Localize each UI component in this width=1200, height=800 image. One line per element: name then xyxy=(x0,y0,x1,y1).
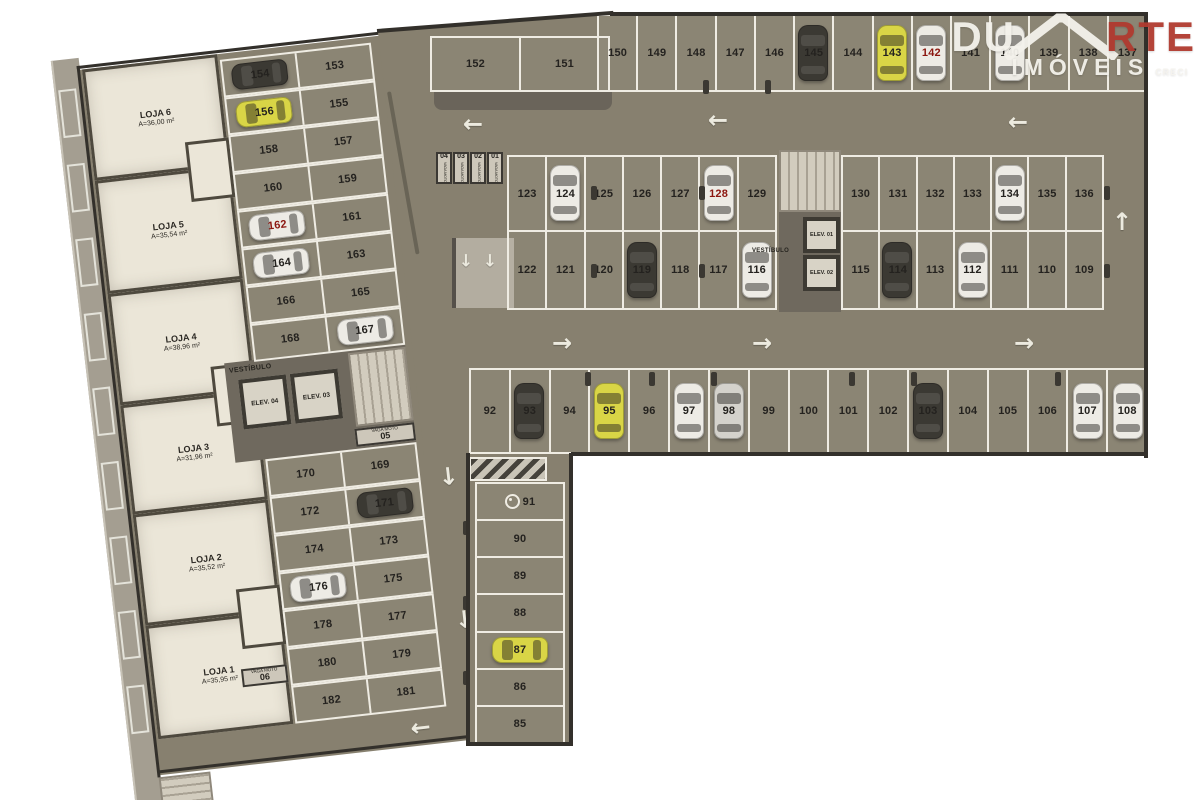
parking-spot: 121 xyxy=(545,232,583,308)
parking-spot: 130 xyxy=(843,157,878,230)
parking-spot: 125 xyxy=(584,157,622,230)
pillar xyxy=(699,264,705,278)
spot-number: 109 xyxy=(1075,264,1094,276)
spot-number: 146 xyxy=(765,47,784,59)
moto-sign-label: VAGA MOTO xyxy=(459,162,463,183)
parking-spot: 111 xyxy=(990,232,1027,308)
parking-spot: 105 xyxy=(987,370,1027,452)
ramp-down xyxy=(452,238,514,308)
parking-spot: 87 xyxy=(477,631,563,668)
watermark-line1: DU RTE xyxy=(951,12,1196,58)
parking-spot: 132 xyxy=(916,157,953,230)
parking-spot: 148 xyxy=(675,16,714,90)
spot-number: 120 xyxy=(594,264,613,276)
parking-row: 91908988878685 xyxy=(475,482,565,744)
parking-spot: 147 xyxy=(715,16,754,90)
moto-spot-sign-04: 04VAGA MOTO xyxy=(436,152,452,184)
spot-number: 100 xyxy=(799,405,818,417)
parking-spot: 129 xyxy=(737,157,775,230)
spot-number: 111 xyxy=(1001,264,1019,276)
spot-number: 131 xyxy=(888,188,907,200)
pillar xyxy=(649,372,655,386)
left-arrow: ← xyxy=(1008,110,1028,134)
pillar xyxy=(585,372,591,386)
spot-number: 96 xyxy=(643,405,656,417)
moto-sign-label: VAGA MOTO xyxy=(442,162,446,183)
parking-spot: 88 xyxy=(477,593,563,630)
pillar xyxy=(1104,264,1110,278)
spot-number: 90 xyxy=(514,533,527,545)
parking-row: 9293949596979899100101102103104105106107… xyxy=(469,368,1148,454)
spot-number: 87 xyxy=(514,644,527,656)
parking-spot: 93 xyxy=(509,370,549,452)
parking-spot: 123 xyxy=(509,157,545,230)
moto-spot-sign-03: 03VAGA MOTO xyxy=(453,152,469,184)
parking-spot: 91 xyxy=(477,484,563,519)
left-arrow: ← xyxy=(708,108,728,132)
spot-number: 132 xyxy=(926,188,945,200)
parking-spot: 89 xyxy=(477,556,563,593)
elevator-02-label: ELEV. 02 xyxy=(810,270,833,276)
moto-spot-sign-02: 02VAGA MOTO xyxy=(470,152,486,184)
pillar xyxy=(911,372,917,386)
spot-number: 145 xyxy=(804,47,823,59)
pillar xyxy=(765,80,771,94)
right-wing: VESTÍBULO ELEV. 01 ELEV. 02 152151150149… xyxy=(0,0,1200,800)
parking-spot: 90 xyxy=(477,519,563,556)
parking-spot: 144 xyxy=(832,16,871,90)
spot-number: 102 xyxy=(879,405,898,417)
right-arrow: → xyxy=(1014,331,1034,355)
moto-sign-number: 01 xyxy=(491,153,499,161)
spot-number: 129 xyxy=(747,188,766,200)
spot-number: 121 xyxy=(556,264,575,276)
spot-number: 115 xyxy=(851,264,869,276)
parking-spot: 101 xyxy=(827,370,867,452)
elevator-01: ELEV. 01 xyxy=(803,217,840,253)
wall xyxy=(569,453,573,746)
spot-number: 119 xyxy=(633,264,651,276)
spot-number: 104 xyxy=(958,405,977,417)
parking-spot: 131 xyxy=(878,157,915,230)
spot-number: 150 xyxy=(608,47,627,59)
parking-spot: 135 xyxy=(1027,157,1064,230)
spot-number: 147 xyxy=(726,47,745,59)
moto-sign-number: 02 xyxy=(474,153,482,161)
spot-number: 113 xyxy=(926,264,944,276)
spot-number: 92 xyxy=(484,405,497,417)
parking-spot: 95 xyxy=(588,370,628,452)
hatched-no-parking-zone xyxy=(469,457,547,481)
pillar xyxy=(849,372,855,386)
spot-number: 125 xyxy=(594,188,613,200)
parking-row: 130131132133134135136 xyxy=(841,155,1104,232)
wall xyxy=(571,452,1148,456)
right-arrow: → xyxy=(552,331,572,355)
parking-spot: 100 xyxy=(788,370,828,452)
spot-number: 148 xyxy=(687,47,706,59)
left-arrow: ← xyxy=(463,112,483,136)
pillar xyxy=(1104,186,1110,200)
watermark-creci: CRECI xyxy=(1155,67,1188,77)
pillar xyxy=(591,186,597,200)
spot-number: 106 xyxy=(1038,405,1057,417)
spot-number: 88 xyxy=(514,607,527,619)
parking-spot: 134 xyxy=(990,157,1027,230)
parking-spot: 136 xyxy=(1065,157,1102,230)
spot-number: 127 xyxy=(671,188,690,200)
watermark-imoveis: IMÓVEIS xyxy=(1011,54,1149,81)
spot-number: 86 xyxy=(514,681,527,693)
parking-spot: 102 xyxy=(867,370,907,452)
parking-spot: 104 xyxy=(947,370,987,452)
spot-number: 135 xyxy=(1038,188,1057,200)
spot-number: 128 xyxy=(709,188,728,200)
parking-spot: 133 xyxy=(953,157,990,230)
spot-number: 116 xyxy=(748,264,766,276)
parking-spot: 107 xyxy=(1066,370,1106,452)
duarte-imoveis-watermark: DU RTE IMÓVEIS CRECI xyxy=(951,12,1196,81)
parking-row: 122121120119118117116 xyxy=(507,230,777,310)
parking-spot: 114 xyxy=(878,232,915,308)
spot-number: 134 xyxy=(1000,188,1019,200)
parking-spot: 119 xyxy=(622,232,660,308)
elevator-01-label: ELEV. 01 xyxy=(810,232,833,238)
parking-spot: 113 xyxy=(916,232,953,308)
parking-spot: 143 xyxy=(872,16,911,90)
pillar xyxy=(1055,372,1061,386)
spot-number: 105 xyxy=(998,405,1017,417)
spot-number: 142 xyxy=(922,47,941,59)
spot-number: 89 xyxy=(514,570,527,582)
parking-spot: 115 xyxy=(843,232,878,308)
pillar xyxy=(591,264,597,278)
parking-spot: 122 xyxy=(509,232,545,308)
spot-number: 114 xyxy=(889,264,907,276)
spot-number: 112 xyxy=(963,264,981,276)
spot-number: 130 xyxy=(851,188,870,200)
spot-number: 98 xyxy=(723,405,736,417)
moto-sign-number: 03 xyxy=(457,153,465,161)
parking-spot: 86 xyxy=(477,668,563,705)
moto-sign-number: 04 xyxy=(440,153,448,161)
moto-spot-sign-01: 01VAGA MOTO xyxy=(487,152,503,184)
parking-spot: 151 xyxy=(519,38,608,90)
spot-number: 95 xyxy=(603,405,616,417)
watermark-rte: RTE xyxy=(1106,16,1196,58)
parking-spot: 146 xyxy=(754,16,793,90)
parking-spot: 145 xyxy=(793,16,832,90)
parking-spot: 108 xyxy=(1106,370,1146,452)
spot-number: 152 xyxy=(466,58,485,70)
right-arrow: → xyxy=(752,331,772,355)
pillar xyxy=(703,80,709,94)
spot-number: 149 xyxy=(647,47,666,59)
down-arrow: ↓ xyxy=(459,254,473,271)
parking-row: 123124125126127128129 xyxy=(507,155,777,232)
parking-spot: 149 xyxy=(636,16,675,90)
parking-row: 152151 xyxy=(430,36,610,92)
spot-number: 110 xyxy=(1038,264,1056,276)
wall-strip xyxy=(434,90,612,110)
parking-spot: 112 xyxy=(953,232,990,308)
pillar xyxy=(711,372,717,386)
parking-spot: 99 xyxy=(748,370,788,452)
parking-spot: 116 xyxy=(737,232,775,308)
moto-sign-label: VAGA MOTO xyxy=(476,162,480,183)
spot-number: 151 xyxy=(555,58,574,70)
spot-number: 143 xyxy=(883,47,902,59)
parking-spot: 150 xyxy=(599,16,636,90)
parking-spot: 124 xyxy=(545,157,583,230)
parking-spot: 92 xyxy=(471,370,509,452)
down-arrow: ↓ xyxy=(483,254,497,271)
spot-number: 126 xyxy=(633,188,652,200)
parking-spot: 94 xyxy=(549,370,589,452)
parking-spot: 97 xyxy=(668,370,708,452)
spot-number: 118 xyxy=(671,264,689,276)
spot-number: 107 xyxy=(1078,405,1097,417)
spot-number: 91 xyxy=(523,496,536,508)
spot-number: 85 xyxy=(514,718,527,730)
spot-number: 124 xyxy=(556,188,575,200)
parking-garage-floor-plan: LOJA 6A=36,00 m²LOJA 5A=35,54 m²LOJA 4A=… xyxy=(0,0,1200,800)
spot-number: 97 xyxy=(683,405,696,417)
parking-row: 115114113112111110109 xyxy=(841,230,1104,310)
vestibule-label: VESTÍBULO xyxy=(752,248,789,254)
spot-number: 136 xyxy=(1075,188,1094,200)
parking-spot: 109 xyxy=(1065,232,1102,308)
spot-number: 94 xyxy=(563,405,576,417)
spot-number: 144 xyxy=(843,47,862,59)
spot-number: 101 xyxy=(839,405,858,417)
spot-number: 133 xyxy=(963,188,982,200)
accessible-icon xyxy=(505,494,520,509)
spot-number: 93 xyxy=(523,405,536,417)
spot-number: 99 xyxy=(762,405,775,417)
up-arrow: ↑ xyxy=(1112,210,1132,234)
parking-spot: 127 xyxy=(660,157,698,230)
roof-icon xyxy=(1002,12,1120,60)
elevator-02: ELEV. 02 xyxy=(803,255,840,291)
parking-spot: 110 xyxy=(1027,232,1064,308)
parking-spot: 118 xyxy=(660,232,698,308)
spot-number: 117 xyxy=(709,264,727,276)
parking-spot: 142 xyxy=(911,16,950,90)
spot-number: 103 xyxy=(919,405,938,417)
spot-number: 123 xyxy=(518,188,537,200)
moto-sign-label: VAGA MOTO xyxy=(493,162,497,183)
staircase-right xyxy=(779,150,841,212)
parking-spot: 126 xyxy=(622,157,660,230)
pillar xyxy=(699,186,705,200)
spot-number: 108 xyxy=(1118,405,1137,417)
spot-number: 122 xyxy=(518,264,537,276)
wall xyxy=(466,742,573,746)
parking-spot: 85 xyxy=(477,705,563,742)
parking-spot: 120 xyxy=(584,232,622,308)
parking-spot: 152 xyxy=(432,38,519,90)
wall xyxy=(466,453,470,746)
